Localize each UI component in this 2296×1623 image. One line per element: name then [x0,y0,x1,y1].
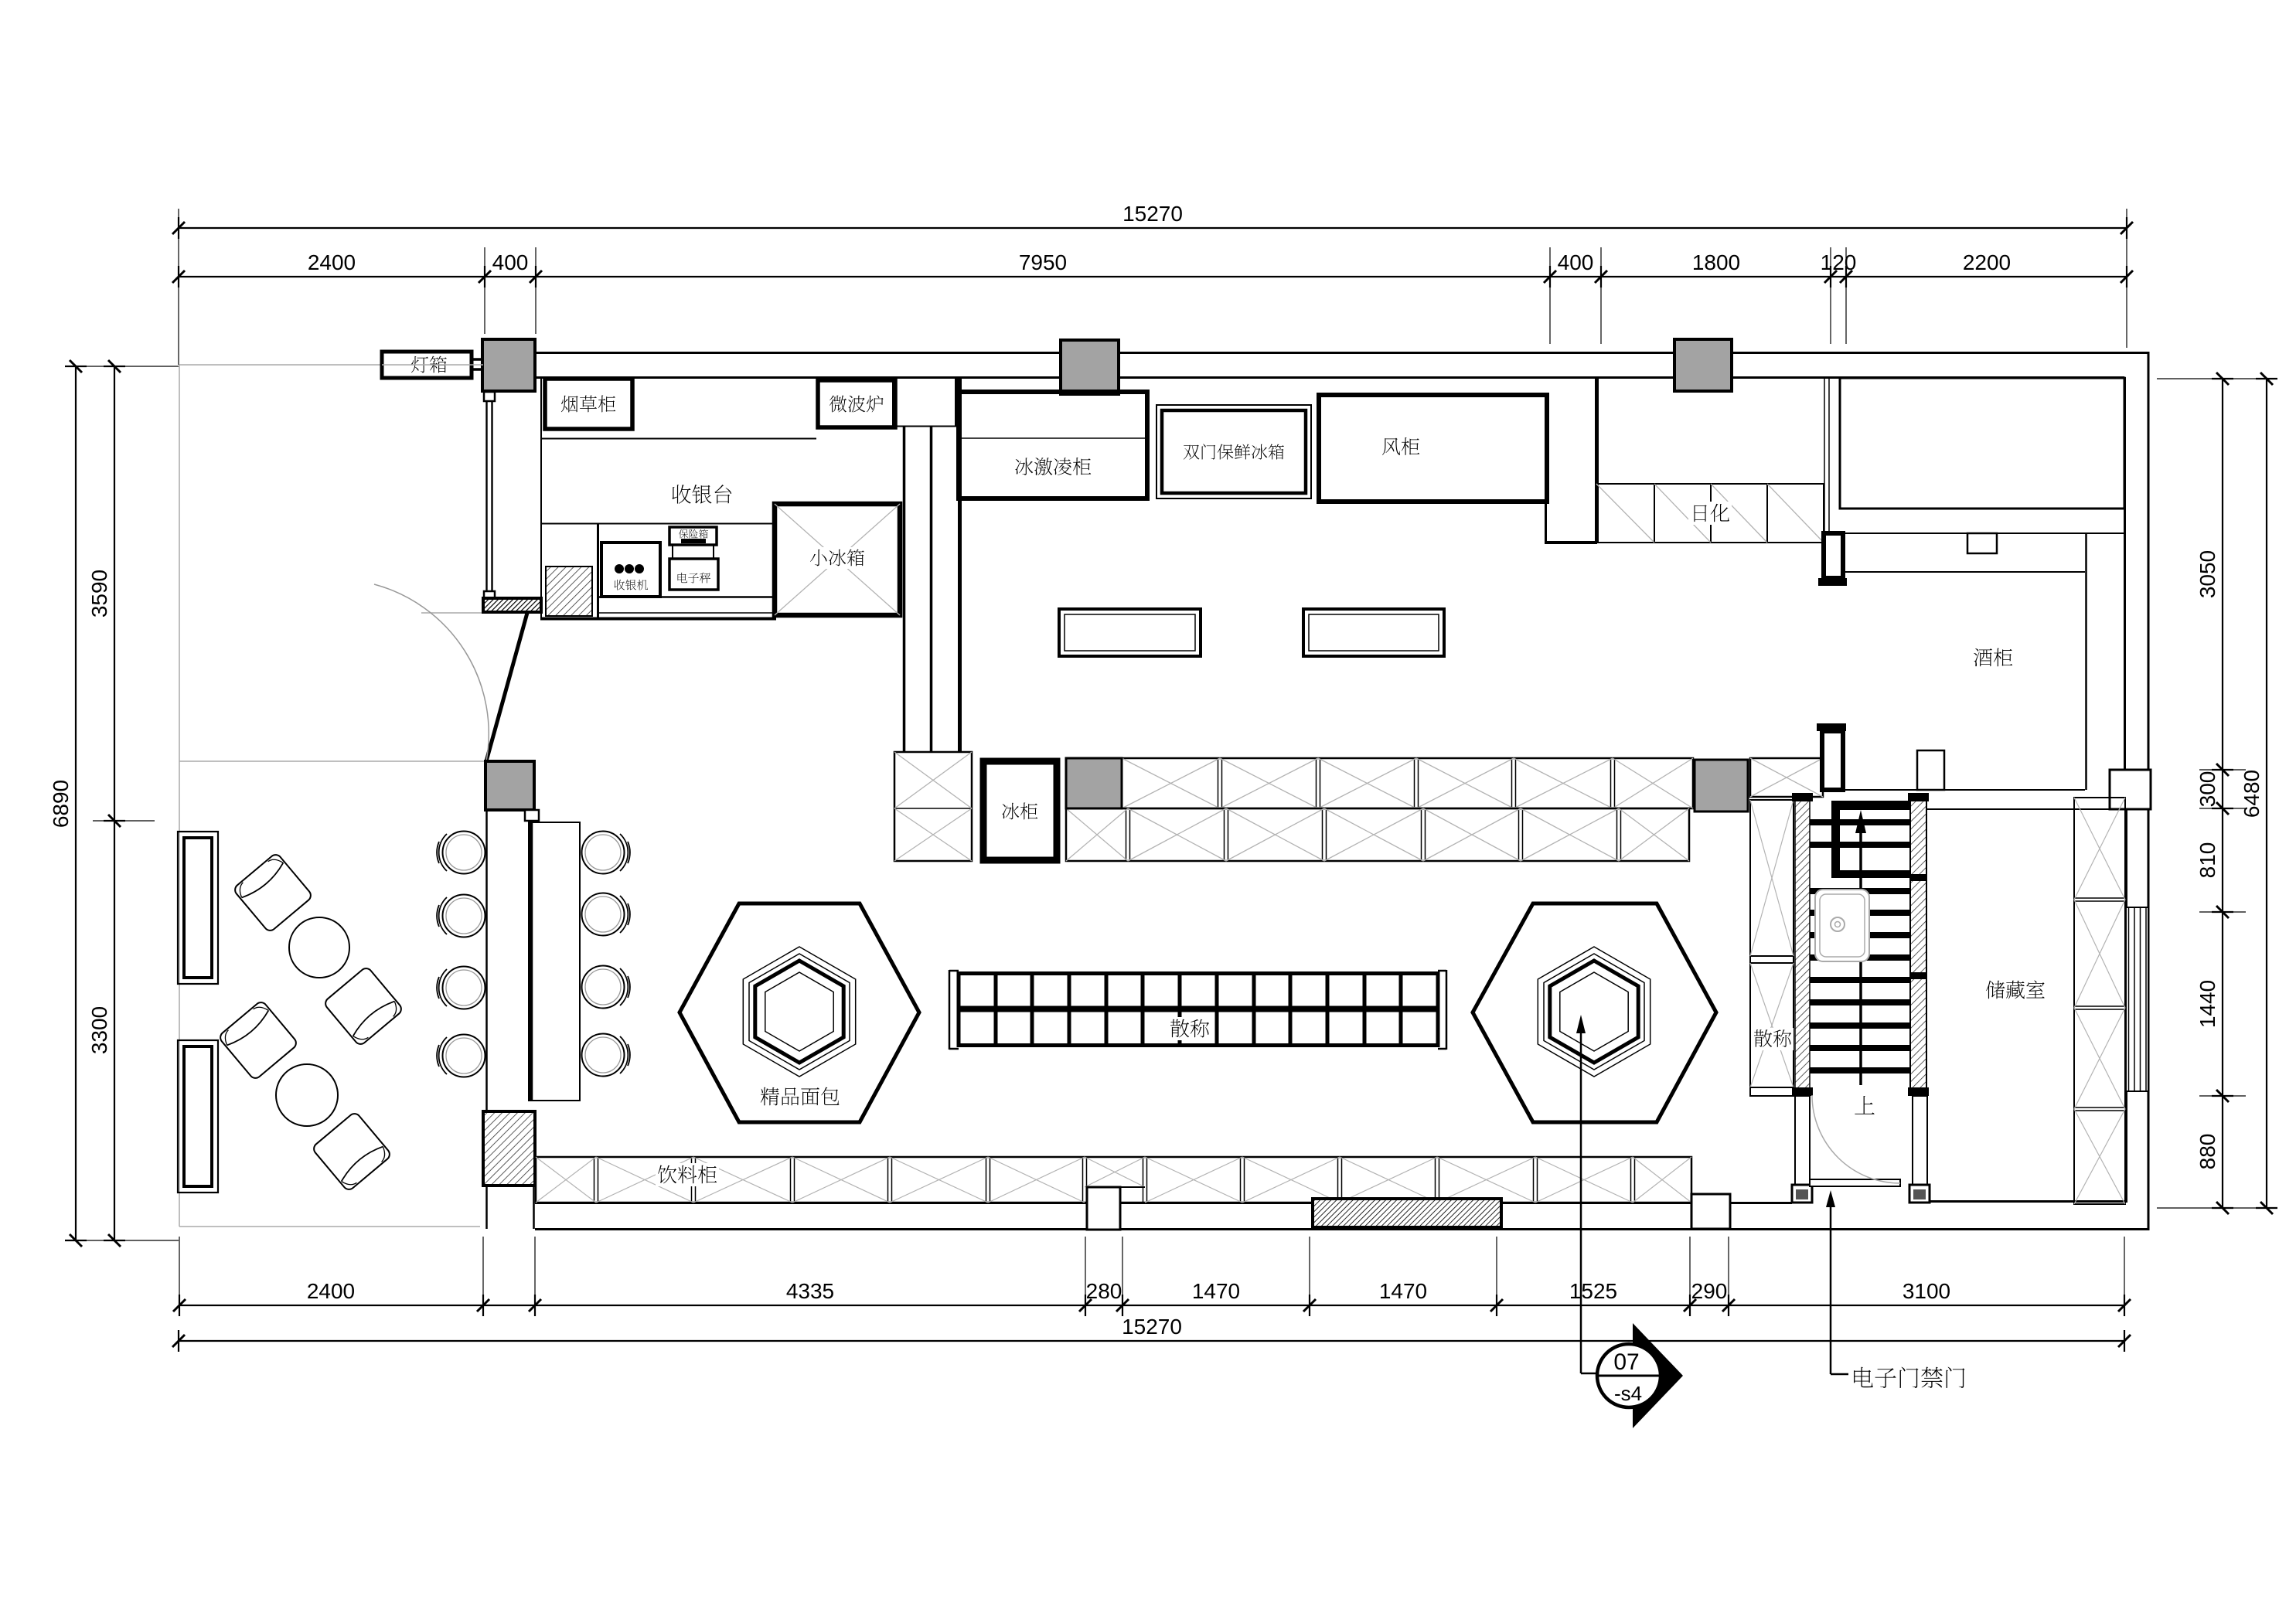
svg-text:1470: 1470 [1192,1279,1240,1303]
svg-text:-s4: -s4 [1614,1382,1642,1405]
svg-text:15270: 15270 [1122,202,1183,226]
svg-text:400: 400 [492,250,529,274]
svg-text:4335: 4335 [786,1279,834,1303]
svg-text:3050: 3050 [2196,550,2219,598]
svg-text:1440: 1440 [2196,980,2219,1028]
svg-text:6890: 6890 [49,780,73,828]
svg-text:120: 120 [1821,250,1857,274]
svg-text:1525: 1525 [1569,1279,1617,1303]
svg-text:810: 810 [2196,842,2219,879]
svg-text:07: 07 [1613,1349,1639,1375]
svg-text:3100: 3100 [1903,1279,1950,1303]
svg-text:400: 400 [1558,250,1594,274]
svg-text:7950: 7950 [1019,250,1067,274]
svg-text:6480: 6480 [2240,770,2264,818]
svg-text:280: 280 [1086,1279,1122,1303]
svg-text:2400: 2400 [308,250,356,274]
svg-text:290: 290 [1691,1279,1728,1303]
svg-text:3300: 3300 [87,1006,111,1054]
svg-text:1800: 1800 [1692,250,1740,274]
svg-text:880: 880 [2196,1134,2219,1170]
svg-text:2200: 2200 [1963,250,2011,274]
svg-text:3590: 3590 [87,570,111,618]
svg-text:2400: 2400 [307,1279,355,1303]
svg-text:1470: 1470 [1379,1279,1427,1303]
svg-text:300: 300 [2196,771,2219,808]
svg-text:15270: 15270 [1122,1315,1182,1339]
